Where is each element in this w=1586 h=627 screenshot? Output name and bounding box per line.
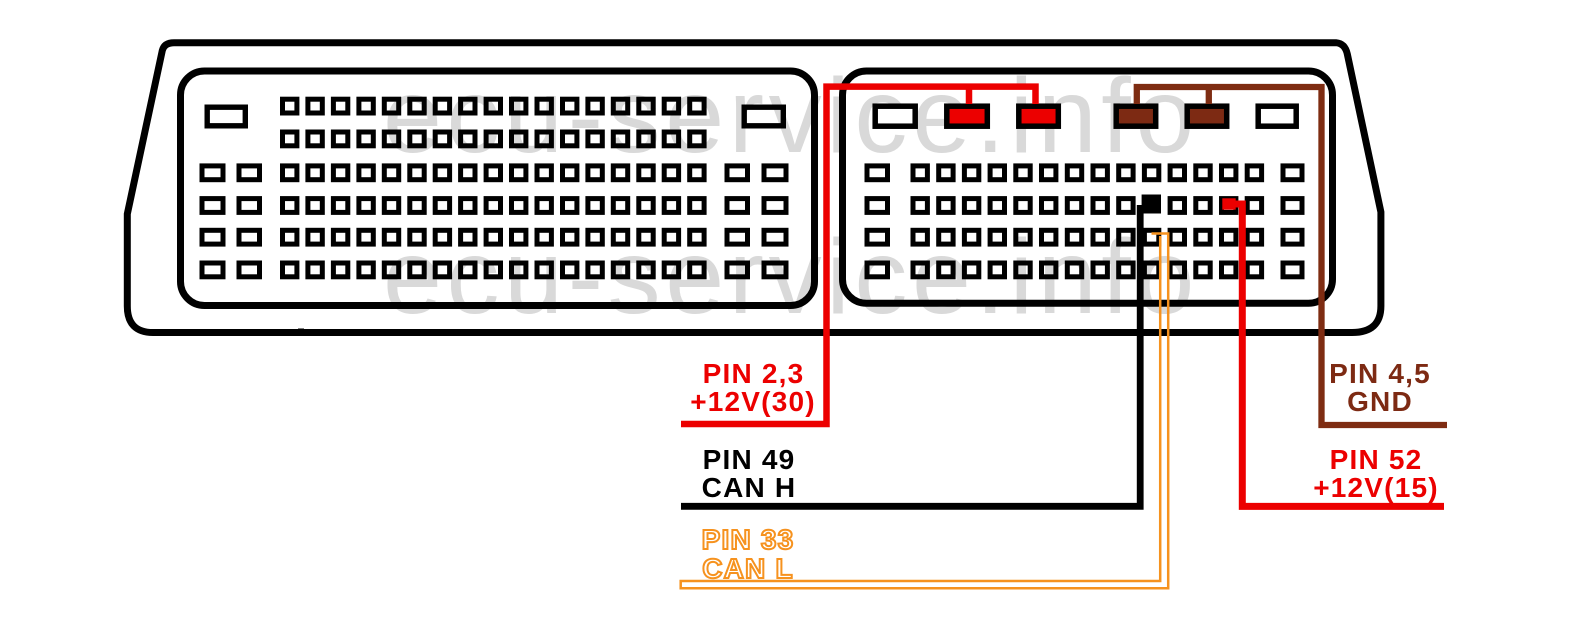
svg-text:+12V(15): +12V(15): [1313, 472, 1439, 503]
svg-text:CAN L: CAN L: [702, 553, 794, 584]
svg-text:+12V(30): +12V(30): [690, 386, 816, 417]
svg-text:PIN 33: PIN 33: [702, 524, 795, 555]
svg-text:PIN 49: PIN 49: [703, 444, 796, 475]
svg-text:CAN H: CAN H: [702, 472, 797, 503]
svg-text:PIN 2,3: PIN 2,3: [703, 358, 805, 389]
svg-text:GND: GND: [1347, 386, 1413, 417]
svg-text:PIN 4,5: PIN 4,5: [1329, 358, 1431, 389]
svg-text:PIN 52: PIN 52: [1330, 444, 1423, 475]
